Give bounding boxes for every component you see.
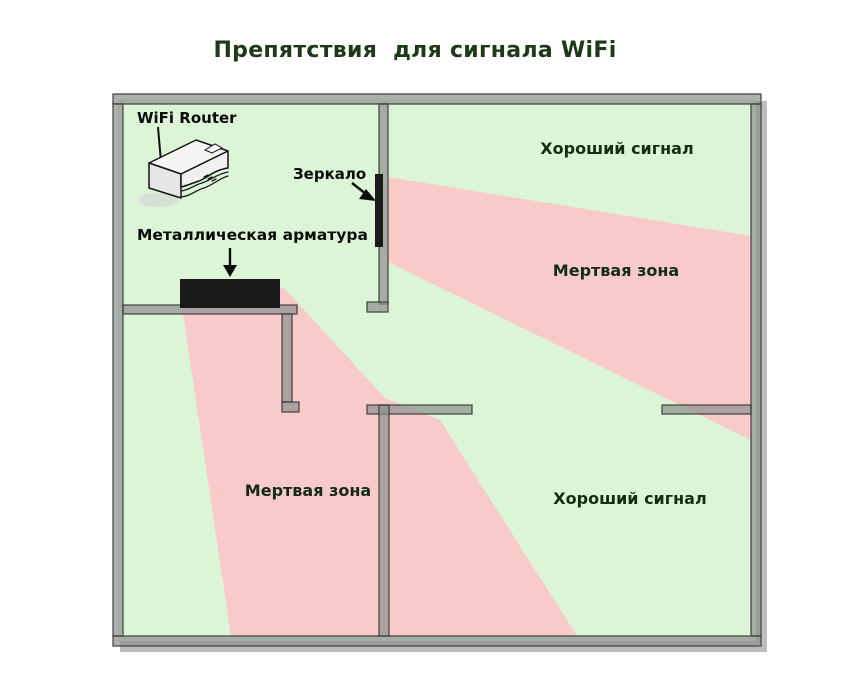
wall-outer-right bbox=[751, 104, 761, 636]
dead-zone-label-right: Мертвая зона bbox=[553, 261, 679, 280]
mirror-bar bbox=[375, 174, 383, 247]
good-signal-label-top: Хороший сигнал bbox=[540, 139, 693, 158]
good-signal-label-bottom: Хороший сигнал bbox=[553, 489, 706, 508]
wall-outer-left bbox=[113, 104, 123, 636]
metal-rebar-block bbox=[180, 279, 280, 308]
router-label: WiFi Router bbox=[137, 109, 237, 127]
wall-bottom-room-top-right bbox=[662, 405, 751, 414]
wifi-obstacles-diagram: Препятствия для сигнала WiFi WiFi Router… bbox=[0, 0, 861, 698]
mirror-label: Зеркало bbox=[293, 165, 366, 183]
wall-center-foot bbox=[367, 302, 388, 312]
wall-center-vertical-bottom bbox=[379, 405, 389, 636]
wall-outer-bottom bbox=[113, 636, 761, 646]
floor-plan-svg bbox=[0, 0, 861, 698]
metal-rebar-label: Металлическая арматура bbox=[137, 226, 368, 244]
dead-zone-label-bottom-left: Мертвая зона bbox=[245, 481, 371, 500]
wall-outer-top bbox=[113, 94, 761, 104]
wall-lower-left-vertical bbox=[282, 314, 292, 402]
page-title: Препятствия для сигнала WiFi bbox=[213, 38, 616, 63]
wall-lower-left-foot bbox=[282, 402, 299, 412]
